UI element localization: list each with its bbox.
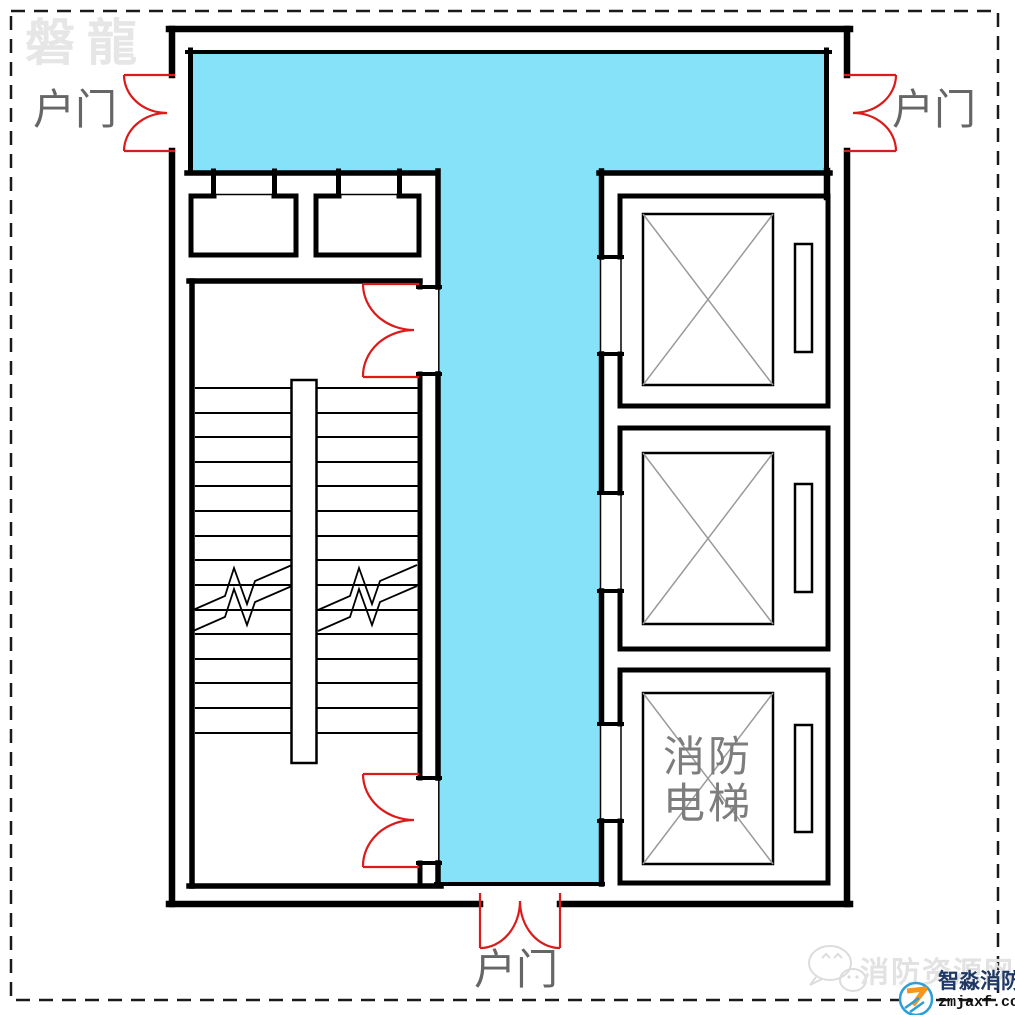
elevator-door-sills xyxy=(601,257,622,821)
entry-door-label-bottom: 户门 xyxy=(474,946,558,993)
wechat-bubble-eyes xyxy=(822,954,842,958)
floor-plan-canvas: 磐龍 xyxy=(0,0,1015,1015)
brand-watermark: 磐龍 xyxy=(25,15,149,71)
entry-door-swing-left xyxy=(124,75,175,151)
stair-door-swing-upper xyxy=(363,284,419,377)
counterweight-3 xyxy=(795,725,812,832)
duct-closets xyxy=(191,171,419,255)
counterweight-2 xyxy=(795,484,812,592)
stair-treads-right xyxy=(317,388,417,733)
counterweight-1 xyxy=(795,244,812,352)
wechat-eye-dot xyxy=(847,975,850,978)
wechat-icon xyxy=(809,946,866,991)
break-line xyxy=(318,565,417,610)
stair-door-swing-lower xyxy=(363,774,419,867)
entry-door-label-left: 户门 xyxy=(33,86,117,133)
logo-domain-text: zmjaxf.com xyxy=(938,994,1015,1011)
duct-closet-1 xyxy=(191,196,296,255)
break-line xyxy=(193,565,292,610)
stair-divider xyxy=(292,380,317,763)
entry-door-swing-bottom xyxy=(480,893,560,948)
duct-closet-2 xyxy=(316,196,419,255)
elevator-door-jambs xyxy=(599,257,622,821)
entry-door-label-right: 户门 xyxy=(892,86,976,133)
elevator-bank: 消防 电梯 xyxy=(599,196,828,883)
wechat-eye-dot xyxy=(855,975,858,978)
logo-name-text: 智淼消防 xyxy=(938,969,1015,993)
entry-door-swing-right xyxy=(844,75,896,151)
fire-elevator-label-line2: 电梯 xyxy=(663,780,753,827)
wechat-bubble-large xyxy=(809,946,851,980)
stair-treads-left xyxy=(196,388,291,733)
stairwell xyxy=(189,281,441,886)
fire-elevator-label-line1: 消防 xyxy=(663,733,753,780)
